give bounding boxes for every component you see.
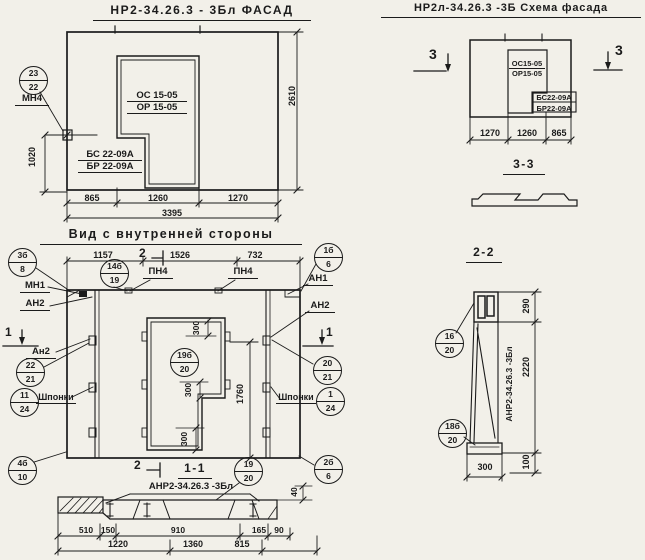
inner-view-title: Вид с внутренней стороны — [40, 227, 302, 245]
label-mn1: МН1 — [20, 281, 50, 293]
callout-18b-20: 18б 20 — [438, 419, 467, 448]
callout-23-22: 23 22 — [19, 66, 48, 95]
panel-mark-vertical: АНР2-34.26.3 -3Бл — [504, 324, 514, 444]
callout-11-24: 11 24 — [10, 388, 39, 417]
callout-4b-10: 4б 10 — [8, 456, 37, 485]
facade-opening-mark: ОС 15-05 ОР 15-05 — [127, 90, 187, 114]
panel-mark-line1: БС 22-09А — [78, 149, 142, 161]
dim-910: 910 — [164, 525, 192, 535]
dim-2220: 2220 — [521, 347, 531, 387]
facade-title: НР2-34.26.3 - 3Бл ФАСАД — [93, 3, 311, 21]
callout-3b-8: 3б 8 — [8, 248, 37, 277]
dim-300-bottom: 300 — [179, 427, 189, 451]
dim-150: 150 — [98, 525, 118, 535]
section-2-mark-top: 2 — [139, 246, 146, 260]
dim-1760: 1760 — [235, 379, 245, 409]
callout-2b-6: 2б 6 — [314, 455, 343, 484]
section-1-mark-left: 1 — [5, 325, 12, 339]
dim-3395: 3395 — [157, 208, 187, 218]
dim-732: 732 — [240, 250, 270, 260]
dim-1270: 1270 — [224, 193, 252, 203]
label-an2-left: АН2 — [20, 299, 50, 311]
dim-300-mid: 300 — [183, 378, 193, 402]
panel-mark-line2: БР 22-09А — [78, 161, 142, 173]
dim-865: 865 — [78, 193, 106, 203]
callout-14b-19: 14б 19 — [100, 259, 129, 288]
dim-510: 510 — [74, 525, 98, 535]
callout-16-20: 16 20 — [435, 329, 464, 358]
dim-1020: 1020 — [27, 142, 37, 172]
callout-1-24: 1 24 — [316, 387, 345, 416]
dim-1360: 1360 — [175, 539, 211, 549]
section-2-mark-bottom: 2 — [134, 458, 141, 472]
opening-mark-line1: ОС 15-05 — [127, 90, 187, 102]
section-1-mark-right: 1 — [326, 325, 333, 339]
callout-20-21: 20 21 — [313, 356, 342, 385]
schema-panel-mark: БС22-09А БР22-09А — [533, 93, 575, 113]
callout-1b-6: 1б 6 — [314, 243, 343, 272]
section-3-3-title: 3-3 — [503, 157, 545, 175]
dim-90: 90 — [269, 525, 289, 535]
dim-1220: 1220 — [100, 539, 136, 549]
schema-opening-mark: ОС15-05 ОР15-05 — [509, 59, 545, 78]
section-2-2-title: 2-2 — [466, 245, 502, 263]
label-shponki-right: Шпонки — [276, 392, 316, 404]
callout-22-21: 22 21 — [16, 358, 45, 387]
dim-1260: 1260 — [140, 193, 176, 203]
label-an2-right: АН2 — [305, 301, 335, 313]
dim-40: 40 — [289, 482, 299, 502]
dim-2610: 2610 — [287, 81, 297, 111]
dim-1526: 1526 — [162, 250, 198, 260]
drawing-sheet: НР2-34.26.3 - 3Бл ФАСАД ОС 15-05 ОР 15-0… — [0, 0, 645, 560]
label-an2-left2: Ан2 — [26, 347, 56, 359]
section-3-mark-right: 3 — [615, 42, 623, 58]
section-1-1-label: АНР2-34.26.3 -3Бл — [131, 482, 251, 492]
schema-dim-865: 865 — [547, 128, 571, 138]
label-pn4-1: ПН4 — [143, 267, 173, 279]
dim-815: 815 — [228, 539, 256, 549]
section-1-1-title: 1-1 — [178, 461, 212, 479]
section-3-mark-left: 3 — [429, 46, 437, 62]
anchor-label-mn4: МН4 — [15, 94, 49, 106]
schema-dim-1260: 1260 — [513, 128, 541, 138]
inner-view — [3, 251, 333, 503]
label-an1: АН1 — [303, 274, 333, 286]
dim-300-top: 300 — [191, 316, 201, 340]
schema-title: НР2л-34.26.3 -3Б Схема фасада — [381, 2, 641, 18]
callout-19b-20: 19б 20 — [170, 348, 199, 377]
label-pn4-2: ПН4 — [228, 267, 258, 279]
opening-mark-line2: ОР 15-05 — [127, 102, 187, 114]
dim-290: 290 — [521, 291, 531, 321]
schema-dim-1270: 1270 — [476, 128, 504, 138]
label-shponki-left: Шпонки — [36, 392, 76, 404]
facade-panel-mark: БС 22-09А БР 22-09А — [78, 149, 142, 173]
dim-300-foot: 300 — [471, 462, 499, 472]
dim-100: 100 — [521, 447, 531, 477]
